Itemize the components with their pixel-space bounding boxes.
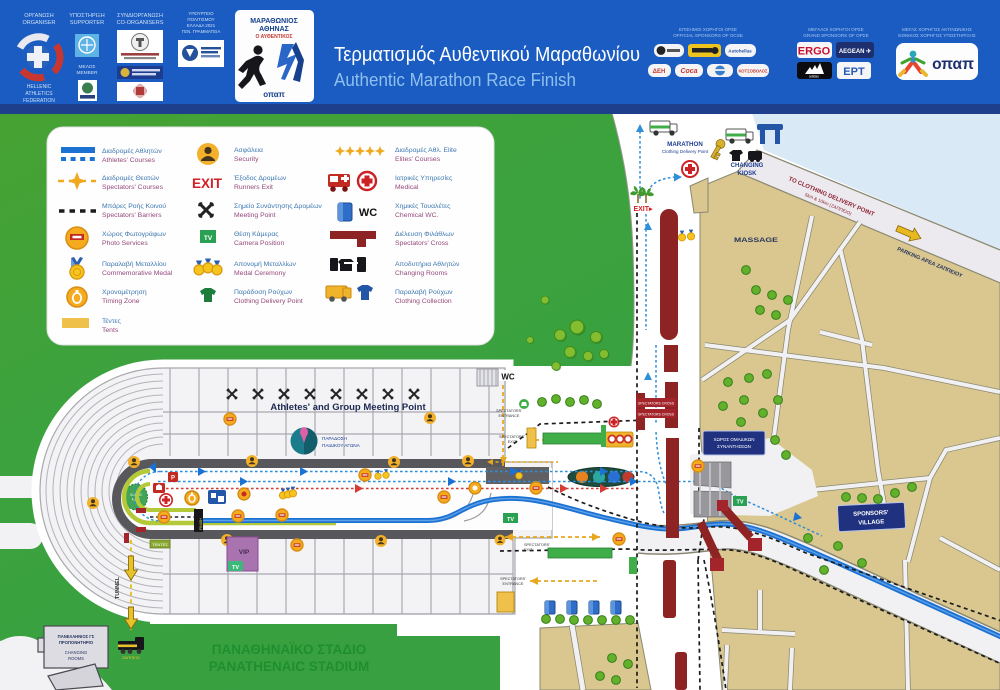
- svg-text:ΥΠΟΣΤΗΡΙΞΗ: ΥΠΟΣΤΗΡΙΞΗ: [69, 13, 104, 19]
- svg-text:ENTRANCE: ENTRANCE: [503, 582, 524, 586]
- svg-text:Clothing Delivery Point: Clothing Delivery Point: [662, 149, 709, 154]
- svg-text:Commemorative Medal: Commemorative Medal: [102, 270, 173, 277]
- svg-text:Security: Security: [234, 156, 259, 163]
- svg-text:ΜΑΡΑΘΩΝΙΟΣ: ΜΑΡΑΘΩΝΙΟΣ: [250, 18, 298, 25]
- svg-text:ATHLETICS: ATHLETICS: [25, 91, 53, 97]
- svg-text:SPECTATORS': SPECTATORS': [496, 409, 522, 413]
- svg-text:HELLENIC: HELLENIC: [27, 84, 52, 90]
- svg-text:AEGEAN ✈: AEGEAN ✈: [839, 48, 871, 55]
- svg-text:PANATHENAIC STADIUM: PANATHENAIC STADIUM: [209, 659, 370, 674]
- svg-text:ΣΥΝΑΝΤΗΣΕΩΝ: ΣΥΝΑΝΤΗΣΕΩΝ: [717, 444, 751, 449]
- svg-text:TUNNEL: TUNNEL: [115, 576, 121, 599]
- svg-text:TV: TV: [507, 517, 514, 523]
- svg-text:KIOSK: KIOSK: [737, 171, 757, 177]
- svg-text:ΠΟΛΙΤΙΣΜΟΥ: ΠΟΛΙΤΙΣΜΟΥ: [187, 17, 214, 22]
- svg-text:TV: TV: [204, 235, 213, 242]
- svg-text:ORGANISER: ORGANISER: [22, 20, 55, 26]
- svg-text:FEDERATION: FEDERATION: [23, 98, 55, 104]
- svg-text:ΜΕΓΑΣ ΧΟΡΗΓΟΣ ΑΚΤΙΝΩΝΙΚΗΣ: ΜΕΓΑΣ ΧΟΡΗΓΟΣ ΑΚΤΙΝΩΝΙΚΗΣ: [902, 27, 972, 32]
- svg-text:ΑΘΗΝΑΣ: ΑΘΗΝΑΣ: [259, 26, 289, 33]
- svg-text:Τερματισμός Αυθεντικού Μαραθων: Τερματισμός Αυθεντικού Μαραθωνίου: [334, 44, 640, 66]
- svg-text:Αποδυτήρια Αθλητών: Αποδυτήρια Αθλητών: [395, 260, 460, 268]
- svg-text:ENTRANCE: ENTRANCE: [499, 414, 520, 418]
- svg-text:Clothing Collection: Clothing Collection: [395, 298, 452, 305]
- svg-text:MASSAGE: MASSAGE: [734, 238, 778, 244]
- svg-text:WC: WC: [359, 207, 377, 219]
- svg-text:Ο ΑΥΘΕΝΤΙΚΟΣ: Ο ΑΥΘΕΝΤΙΚΟΣ: [256, 34, 293, 40]
- svg-text:Changing Rooms: Changing Rooms: [395, 270, 448, 277]
- svg-text:Timing Zone: Timing Zone: [102, 298, 140, 305]
- svg-text:Απονομή Μεταλλίων: Απονομή Μεταλλίων: [234, 260, 296, 268]
- svg-text:Διαδρομές Θεατών: Διαδρομές Θεατών: [102, 174, 160, 182]
- svg-text:SPECTATORS': SPECTATORS': [499, 435, 525, 439]
- svg-text:Elites' Courses: Elites' Courses: [395, 156, 441, 163]
- svg-text:Χημικές Τουαλέτες: Χημικές Τουαλέτες: [395, 202, 451, 210]
- svg-text:ΖΑΠΠΕΙΟ: ΖΑΠΠΕΙΟ: [122, 655, 140, 660]
- svg-text:ΓΕΝ. ΓΡΑΜΜΑΤΕΙΑ: ΓΕΝ. ΓΡΑΜΜΑΤΕΙΑ: [182, 29, 221, 34]
- svg-text:SPECTATORS': SPECTATORS': [500, 577, 526, 581]
- svg-text:Meeting Point: Meeting Point: [234, 212, 276, 219]
- svg-text:Παράδοση Ρούχων: Παράδοση Ρούχων: [234, 288, 293, 296]
- svg-text:οπαπ: οπαπ: [932, 56, 974, 73]
- svg-text:SPECTATORS': SPECTATORS': [524, 543, 550, 547]
- svg-text:Tents: Tents: [102, 327, 119, 334]
- svg-text:ΧΩΡΟΣ ΟΜΑΔΙΚΩΝ: ΧΩΡΟΣ ΟΜΑΔΙΚΩΝ: [713, 437, 754, 442]
- svg-text:Διαδρομές Αθλ. Elite: Διαδρομές Αθλ. Elite: [395, 146, 457, 154]
- svg-text:Μπάρες Ροής Κοινού: Μπάρες Ροής Κοινού: [102, 202, 166, 210]
- svg-text:Athletes' and Group Meeting Po: Athletes' and Group Meeting Point: [270, 402, 426, 413]
- svg-text:Camera Position: Camera Position: [234, 240, 284, 247]
- svg-text:ERGO: ERGO: [798, 46, 831, 58]
- svg-text:Διαδρομές Αθλητών: Διαδρομές Αθλητών: [102, 147, 162, 155]
- svg-text:Autohellas: Autohellas: [728, 49, 752, 54]
- svg-text:Clothing Delivery Point: Clothing Delivery Point: [234, 298, 303, 305]
- svg-text:Medal Ceremony: Medal Ceremony: [234, 270, 286, 277]
- svg-text:CO-ORGANISERS: CO-ORGANISERS: [117, 20, 164, 26]
- svg-text:EXIT: EXIT: [524, 548, 533, 552]
- svg-text:ΕΘΝΙΚΟΣ ΧΟΡΗΓΟΣ ΥΠΟΣΤΗΡΙΞΗΣ: ΕΘΝΙΚΟΣ ΧΟΡΗΓΟΣ ΥΠΟΣΤΗΡΙΞΗΣ: [898, 33, 976, 38]
- svg-text:ΠΑΝΑΘΗΝΑΪΚΟ ΣΤΑΔΙΟ: ΠΑΝΑΘΗΝΑΪΚΟ ΣΤΑΔΙΟ: [212, 642, 367, 657]
- svg-text:Chemical WC.: Chemical WC.: [395, 212, 439, 219]
- svg-text:Spectators' Barriers: Spectators' Barriers: [102, 212, 162, 219]
- svg-text:MARATHON: MARATHON: [667, 141, 703, 148]
- svg-text:CHANGING: CHANGING: [65, 650, 88, 655]
- svg-text:Χρονομέτρηση: Χρονομέτρηση: [102, 288, 147, 296]
- svg-text:adidas: adidas: [809, 75, 819, 79]
- svg-text:MEMBER: MEMBER: [76, 70, 98, 76]
- svg-text:EXIT▸: EXIT▸: [633, 206, 653, 213]
- svg-text:ΕΡΤ: ΕΡΤ: [843, 66, 865, 78]
- svg-text:P: P: [171, 476, 175, 482]
- svg-text:Coca: Coca: [680, 68, 697, 75]
- svg-text:TV: TV: [736, 500, 743, 506]
- svg-text:WC: WC: [501, 373, 515, 382]
- svg-text:Spectators' Cross: Spectators' Cross: [395, 240, 449, 247]
- svg-text:ΠΑΡΑΔΟΣΗ: ΠΑΡΑΔΟΣΗ: [322, 436, 347, 441]
- svg-text:οπαπ: οπαπ: [263, 90, 285, 99]
- svg-text:Σημείο Συνάντησης Δρομέων: Σημείο Συνάντησης Δρομέων: [234, 202, 322, 210]
- svg-text:Έξοδος Δρομέων: Έξοδος Δρομέων: [233, 174, 287, 182]
- svg-text:Διέλευση Φιλάθλων: Διέλευση Φιλάθλων: [395, 230, 454, 238]
- svg-text:Ασφάλεια: Ασφάλεια: [234, 146, 263, 154]
- svg-text:ΠΑΙΔΙΚΟΥ ΑΓΩΝΑ: ΠΑΙΔΙΚΟΥ ΑΓΩΝΑ: [322, 443, 361, 448]
- svg-text:ΔΕΗ: ΔΕΗ: [653, 69, 666, 75]
- svg-text:Runners Exit: Runners Exit: [234, 184, 273, 191]
- svg-text:ΣΥΝΔΙΟΡΓΑΝΩΣΗ: ΣΥΝΔΙΟΡΓΑΝΩΣΗ: [117, 13, 163, 19]
- svg-text:Τέντες: Τέντες: [102, 317, 122, 325]
- svg-text:GRAND SPONSORS OF ΟΡΣΕ: GRAND SPONSORS OF ΟΡΣΕ: [803, 33, 868, 38]
- svg-text:ΕΠΙΣΗΜΟΙ ΧΟΡΗΓΟΙ ΟΡΣΕ: ΕΠΙΣΗΜΟΙ ΧΟΡΗΓΟΙ ΟΡΣΕ: [679, 27, 737, 32]
- svg-text:Χώρος Φωτογράφων: Χώρος Φωτογράφων: [102, 230, 167, 238]
- svg-text:EXIT: EXIT: [192, 176, 223, 191]
- svg-text:Authentic Marathon Race Finish: Authentic Marathon Race Finish: [334, 70, 576, 90]
- svg-text:FINISH: FINISH: [199, 518, 203, 530]
- svg-text:OFFICIAL SPONSORS OF OCSE: OFFICIAL SPONSORS OF OCSE: [673, 33, 743, 38]
- svg-text:Θέση Κάμερας: Θέση Κάμερας: [234, 230, 279, 238]
- svg-text:SPECTATORS CROSS: SPECTATORS CROSS: [638, 412, 674, 417]
- svg-text:SPECTATORS CROSS: SPECTATORS CROSS: [638, 401, 674, 406]
- svg-text:ΤΕΝΤΕΣ: ΤΕΝΤΕΣ: [152, 542, 168, 547]
- svg-text:SUPPORTER: SUPPORTER: [70, 20, 104, 26]
- svg-text:Athletes' Courses: Athletes' Courses: [102, 157, 156, 164]
- svg-text:TV: TV: [232, 565, 239, 571]
- svg-text:EXIT: EXIT: [508, 440, 517, 444]
- svg-text:Photo Services: Photo Services: [102, 240, 148, 247]
- svg-text:Ιατρικές Υπηρεσίες: Ιατρικές Υπηρεσίες: [395, 174, 453, 182]
- svg-text:ΚΟΤΣΟΒΟΛΟΣ: ΚΟΤΣΟΒΟΛΟΣ: [738, 69, 768, 74]
- svg-text:ΠΑΝΕΛΛΗΝΙΟΣ ΓΣ: ΠΑΝΕΛΛΗΝΙΟΣ ΓΣ: [58, 634, 95, 639]
- svg-text:Παραλαβή Ρούχων: Παραλαβή Ρούχων: [395, 288, 453, 296]
- svg-text:ΕΛΛΑΔΑ 2021: ΕΛΛΑΔΑ 2021: [187, 23, 216, 28]
- svg-text:CHANGING: CHANGING: [731, 163, 764, 169]
- svg-text:Spectators' Courses: Spectators' Courses: [102, 184, 164, 191]
- svg-text:ΟΡΓΑΝΩΣΗ: ΟΡΓΑΝΩΣΗ: [24, 13, 54, 19]
- svg-text:ΠΡΟΠΟΝΗΤΗΡΙΟ: ΠΡΟΠΟΝΗΤΗΡΙΟ: [59, 640, 94, 645]
- svg-text:Medical: Medical: [395, 184, 419, 191]
- svg-text:ΜΕΛΟΣ: ΜΕΛΟΣ: [79, 64, 96, 70]
- svg-text:ΜΕΓΑΛΟΙ ΧΟΡΗΓΟΙ ΟΡΣΕ: ΜΕΓΑΛΟΙ ΧΟΡΗΓΟΙ ΟΡΣΕ: [808, 27, 863, 32]
- svg-text:ROOMS: ROOMS: [68, 656, 84, 661]
- svg-text:ΥΠΟΥΡΓΕΙΟ: ΥΠΟΥΡΓΕΙΟ: [188, 11, 214, 16]
- svg-text:Παραλαβή Μεταλλίου: Παραλαβή Μεταλλίου: [102, 260, 167, 268]
- svg-text:VIP: VIP: [239, 549, 250, 556]
